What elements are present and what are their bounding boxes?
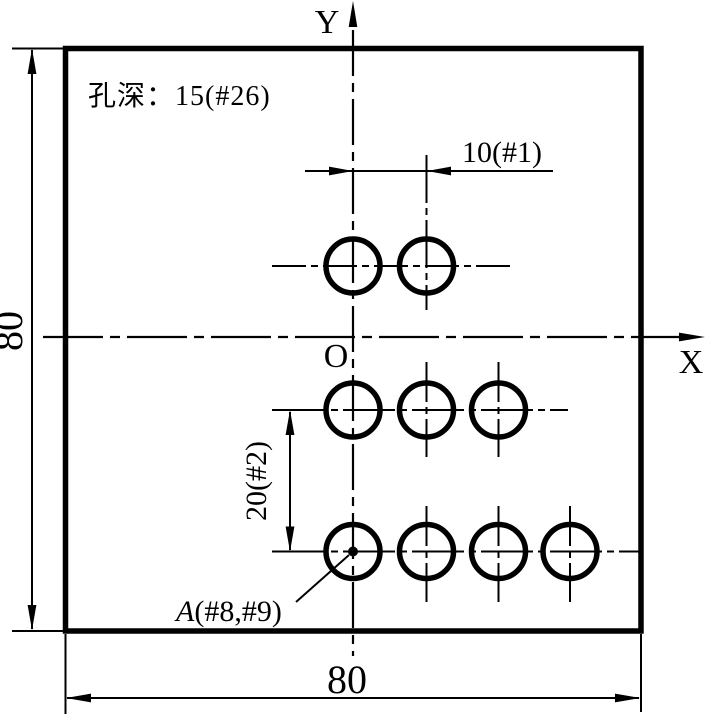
dim-arrow-up-icon — [28, 49, 37, 75]
dimension-row-pitch-y: 20(#2) — [240, 410, 328, 552]
dim-arrow-right-icon — [329, 167, 353, 176]
point-a-name: A — [174, 595, 195, 628]
dim-text-width-80: 80 — [327, 657, 367, 702]
y-axis-label: Y — [315, 4, 340, 41]
dim-arrow-up-icon — [286, 410, 295, 435]
dim-arrow-down-icon — [286, 527, 295, 552]
engineering-drawing-page: X Y O 孔深：15(#26) — [0, 0, 706, 716]
dimension-hole-pitch-x: 10(#1) — [305, 136, 553, 175]
dim-text-10: 10(#1) — [462, 136, 542, 169]
engineering-drawing: X Y O 孔深：15(#26) — [0, 0, 706, 716]
origin-label: O — [324, 338, 349, 375]
y-axis: Y — [315, 1, 358, 656]
y-axis-arrow-icon — [349, 1, 358, 27]
hole-depth-note: 孔深：15(#26) — [88, 81, 271, 112]
point-a-label: A(#8,#9) — [174, 595, 282, 628]
dim-arrow-right-icon — [615, 694, 640, 703]
dimension-plate-width: 80 — [66, 634, 642, 714]
point-a-marker — [348, 547, 358, 557]
holes — [326, 239, 597, 579]
dim-text-20: 20(#2) — [240, 441, 273, 521]
x-axis-label: X — [679, 344, 704, 381]
dim-arrow-left-icon — [66, 694, 91, 703]
x-axis: X — [43, 333, 705, 381]
dim-arrow-left-icon — [427, 167, 451, 176]
dimension-plate-height: 80 — [0, 49, 63, 632]
x-axis-arrow-icon — [679, 333, 705, 342]
dim-text-height-80: 80 — [0, 311, 31, 351]
point-a-registers: (#8,#9) — [194, 595, 281, 628]
dim-arrow-down-icon — [28, 605, 37, 630]
point-a-callout: A(#8,#9) — [174, 547, 358, 629]
